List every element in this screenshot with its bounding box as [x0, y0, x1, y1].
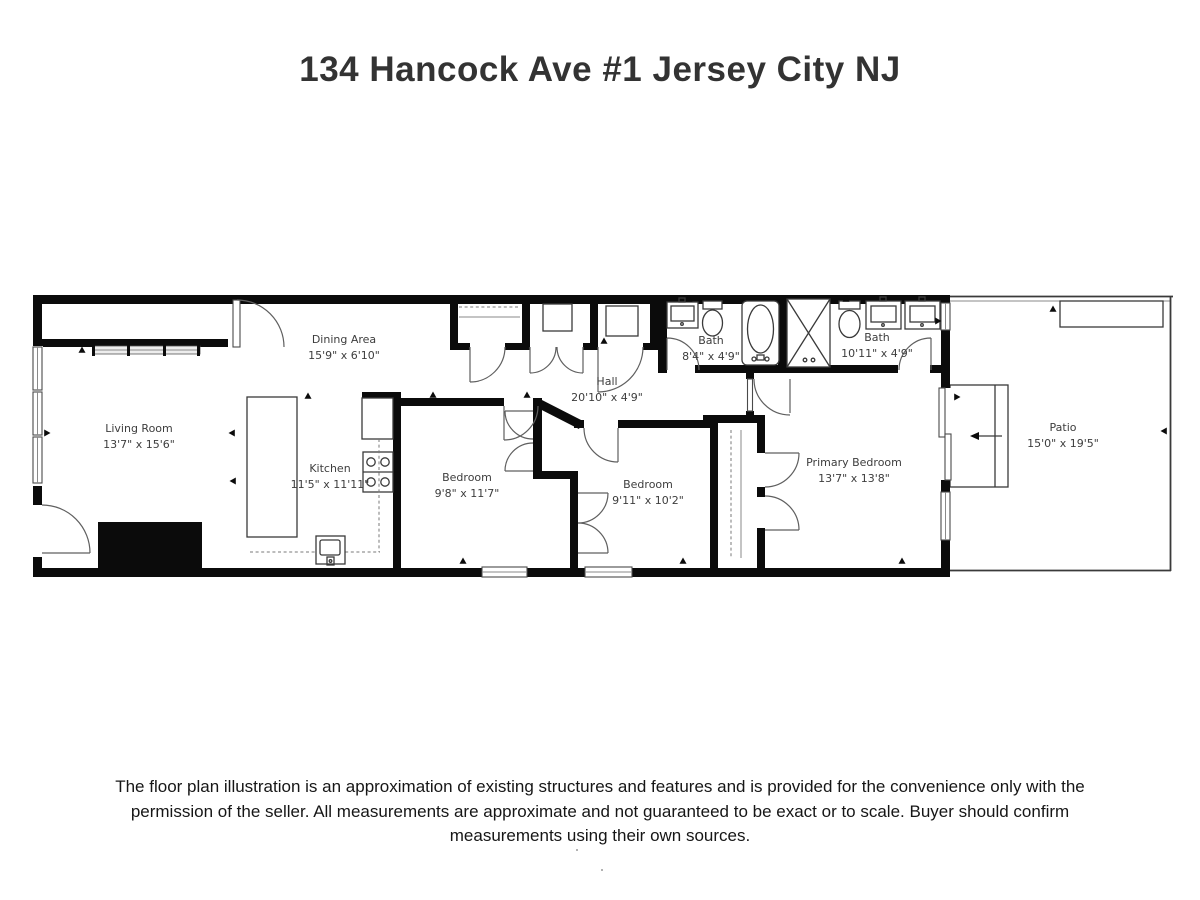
disclaimer-line-3: measurements using their own sources. [0, 824, 1200, 849]
bath1-toilet-icon [703, 301, 723, 336]
room-dims: 8'4" x 4'9" [682, 349, 740, 365]
room-label-bath-1: Bath 8'4" x 4'9" [682, 333, 740, 364]
room-dims: 13'7" x 13'8" [806, 471, 902, 487]
disclaimer-line-1: The floor plan illustration is an approx… [0, 775, 1200, 800]
room-name: Dining Area [308, 332, 380, 348]
shower-icon [787, 299, 830, 367]
print-artifact-dot [576, 849, 578, 851]
room-dims: 11'5" x 11'11" [291, 477, 370, 493]
room-name: Bath [841, 330, 913, 346]
floor-plan-page: 134 Hancock Ave #1 Jersey City NJ [0, 0, 1200, 900]
room-dims: 10'11" x 4'9" [841, 346, 913, 362]
disclaimer-line-2: permission of the seller. All measuremen… [0, 800, 1200, 825]
room-name: Bath [682, 333, 740, 349]
room-name: Bedroom [435, 470, 500, 486]
entry-door [42, 505, 90, 553]
floor-plan-drawing [0, 0, 1200, 900]
room-dims: 15'9" x 6'10" [308, 348, 380, 364]
bedroom2-closet-doors [578, 493, 608, 553]
room-label-bedroom-2: Bedroom 9'11" x 10'2" [612, 477, 684, 508]
kitchen-sink-icon [316, 536, 345, 565]
room-dims: 9'8" x 11'7" [435, 486, 500, 502]
room-name: Hall [571, 374, 643, 390]
room-label-hall: Hall 20'10" x 4'9" [571, 374, 643, 405]
bedroom1-wardrobe-doors [505, 411, 533, 471]
room-name: Primary Bedroom [806, 455, 902, 471]
kitchen-counter [362, 398, 393, 439]
room-name: Living Room [103, 421, 175, 437]
room-label-patio: Patio 15'0" x 19'5" [1027, 420, 1099, 451]
patio-planter [1060, 301, 1163, 327]
room-label-dining-area: Dining Area 15'9" x 6'10" [308, 332, 380, 363]
room-label-bath-2: Bath 10'11" x 4'9" [841, 330, 913, 361]
primary-bedroom-door [754, 379, 790, 415]
hall-closet-door-1 [470, 347, 505, 382]
primary-closet-doors [765, 453, 799, 530]
bath2-sink-icon-2 [905, 297, 940, 329]
sliding-door [939, 388, 945, 437]
room-label-kitchen: Kitchen 11'5" x 11'11" [291, 461, 370, 492]
stair-mass [98, 522, 202, 568]
room-name: Patio [1027, 420, 1099, 436]
room-label-primary-bedroom: Primary Bedroom 13'7" x 13'8" [806, 455, 902, 486]
room-dims: 20'10" x 4'9" [571, 390, 643, 406]
print-artifact-dot [601, 869, 603, 871]
room-dims: 15'0" x 19'5" [1027, 436, 1099, 452]
room-label-bedroom-1: Bedroom 9'8" x 11'7" [435, 470, 500, 501]
bath1-tub-icon [742, 301, 779, 365]
disclaimer-text: The floor plan illustration is an approx… [0, 775, 1200, 849]
kitchen-island [247, 397, 297, 537]
patio-steps [950, 385, 1008, 487]
room-name: Bedroom [612, 477, 684, 493]
vestibule-door [237, 300, 284, 347]
room-name: Kitchen [291, 461, 370, 477]
room-label-living-room: Living Room 13'7" x 15'6" [103, 421, 175, 452]
hall-closet-door-2 [530, 347, 583, 373]
room-dims: 9'11" x 10'2" [612, 493, 684, 509]
bath2-sink-icon-1 [866, 297, 901, 329]
bedroom2-door [584, 428, 618, 462]
room-dims: 13'7" x 15'6" [103, 437, 175, 453]
bath1-sink-icon [667, 298, 698, 328]
